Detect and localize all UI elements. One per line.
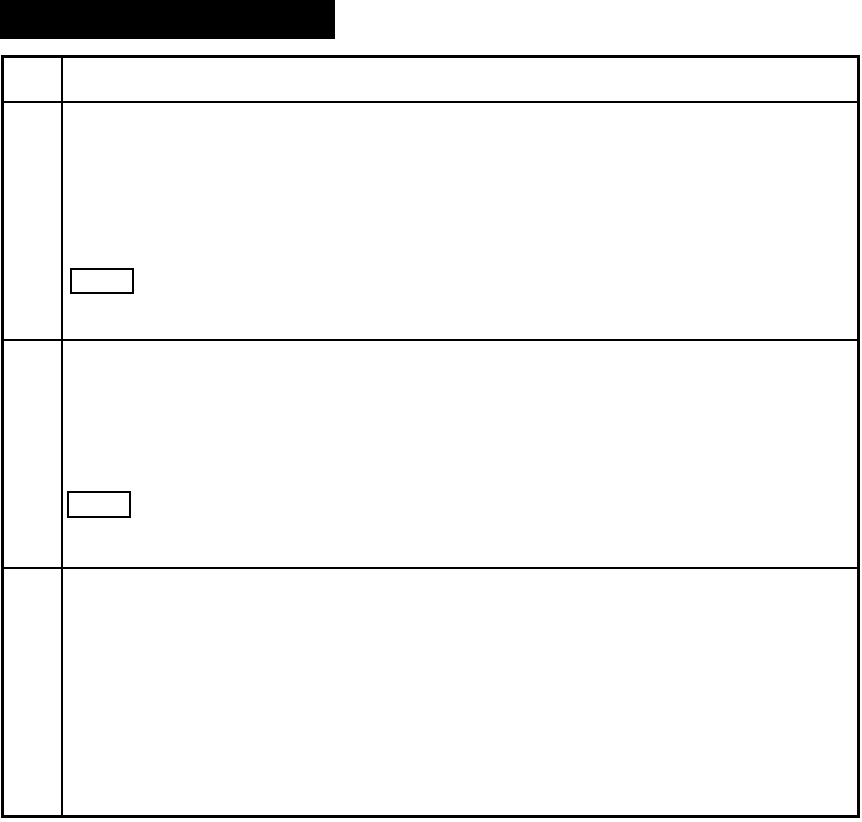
row1-cell-left [4,103,63,341]
row1-entry-box[interactable] [70,268,134,294]
header-cell-main [63,58,857,103]
row2-entry-box[interactable] [67,491,131,518]
document-page [0,0,862,822]
form-table [1,55,860,818]
row1-cell-main [63,103,857,341]
row3-cell-main [63,569,857,815]
header-cell-left [4,58,63,103]
redacted-title-block [0,0,335,39]
row3-cell-left [4,569,63,815]
row2-cell-left [4,341,63,569]
row2-cell-main [63,341,857,569]
